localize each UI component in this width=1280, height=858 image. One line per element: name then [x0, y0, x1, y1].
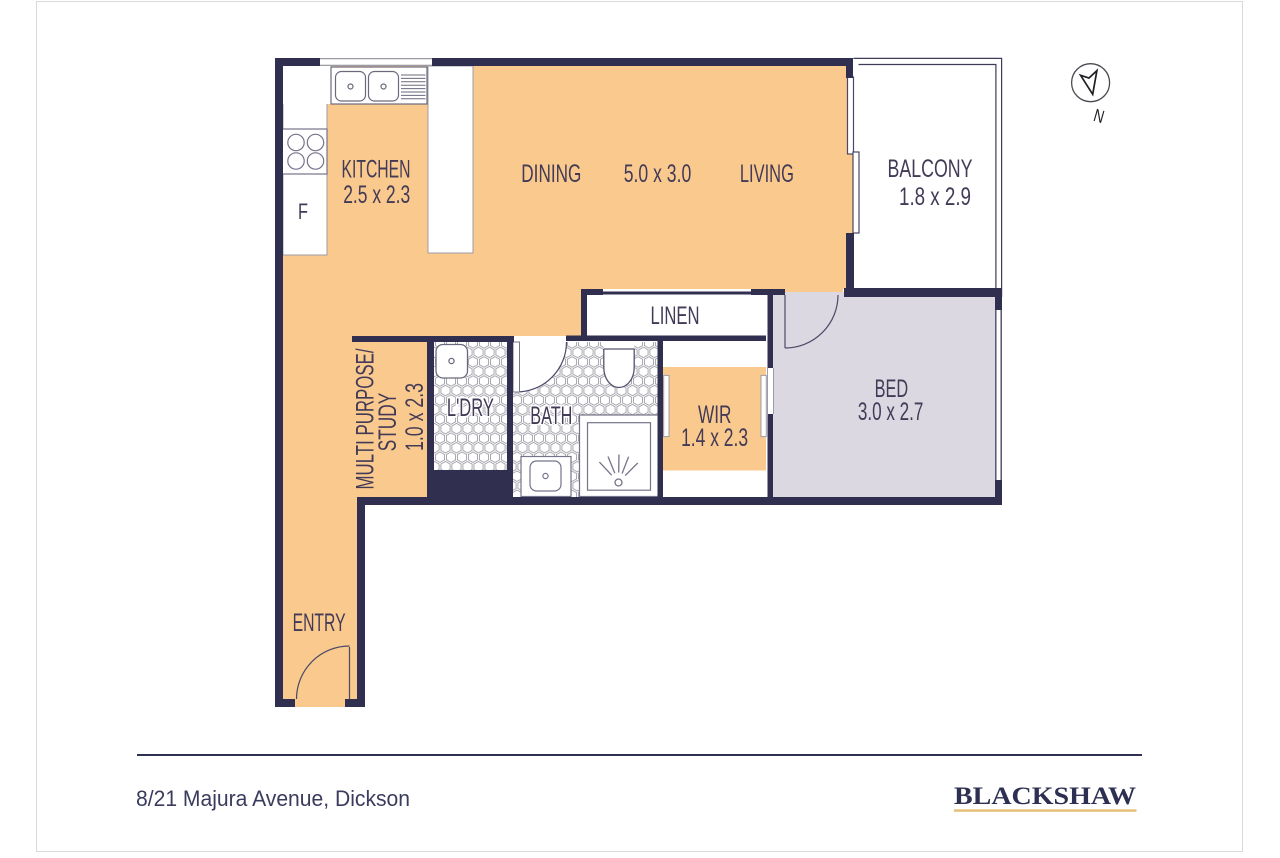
svg-text:DINING: DINING [521, 160, 581, 188]
svg-text:L'DRY: L'DRY [447, 394, 494, 422]
svg-text:LINEN: LINEN [651, 302, 700, 330]
svg-text:1.4 x 2.3: 1.4 x 2.3 [681, 424, 748, 452]
svg-text:LIVING: LIVING [740, 160, 794, 188]
svg-text:2.5 x 2.3: 2.5 x 2.3 [343, 181, 410, 209]
svg-text:1.8 x 2.9: 1.8 x 2.9 [899, 183, 971, 211]
svg-text:F: F [298, 199, 308, 224]
svg-text:BATH: BATH [530, 402, 572, 430]
svg-text:ENTRY: ENTRY [293, 609, 346, 637]
svg-text:BLACKSHAW: BLACKSHAW [954, 783, 1136, 810]
svg-text:BALCONY: BALCONY [888, 155, 973, 183]
svg-text:8/21 Majura Avenue, Dickson: 8/21 Majura Avenue, Dickson [136, 786, 410, 811]
svg-text:1.0 x 2.3: 1.0 x 2.3 [401, 383, 429, 451]
svg-text:STUDY: STUDY [374, 393, 402, 452]
svg-text:5.0 x 3.0: 5.0 x 3.0 [624, 160, 692, 188]
svg-text:3.0 x 2.7: 3.0 x 2.7 [858, 398, 924, 426]
svg-text:KITCHEN: KITCHEN [342, 156, 411, 184]
